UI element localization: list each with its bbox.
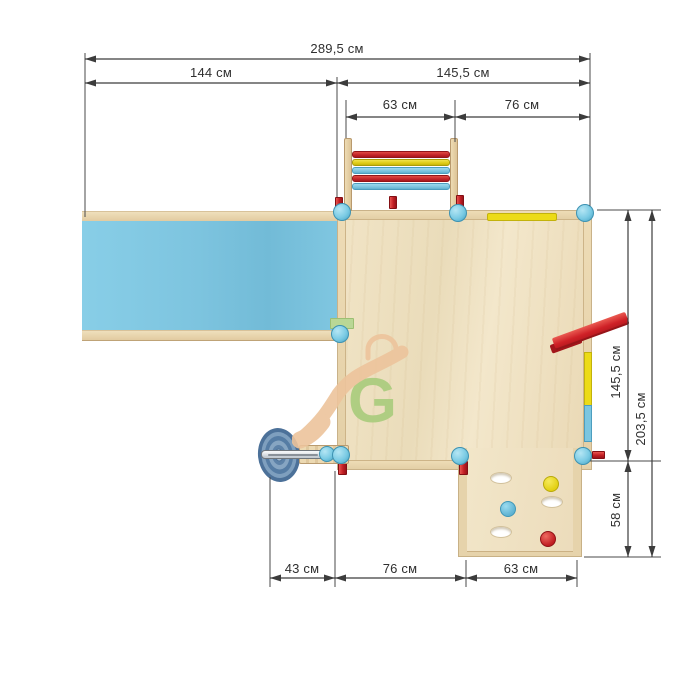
dimension-lines [0, 0, 700, 700]
dim-label-right-total: 203,5 см [634, 374, 648, 464]
dim-label-right-platform: 145,5 см [609, 327, 623, 417]
playground-top-view-diagram: G [0, 0, 700, 700]
dim-label-right-wall: 58 см [609, 465, 623, 555]
dim-label-top-total: 289,5 см [292, 42, 382, 56]
dim-label-top-ladder-right: 76 см [477, 98, 567, 112]
dim-label-bottom-middle: 76 см [355, 562, 445, 576]
dim-label-bottom-wall: 63 см [476, 562, 566, 576]
dim-label-top-right: 145,5 см [418, 66, 508, 80]
dim-label-top-ladder: 63 см [355, 98, 445, 112]
dim-label-top-left: 144 см [166, 66, 256, 80]
dim-label-bottom-wheel: 43 см [257, 562, 347, 576]
